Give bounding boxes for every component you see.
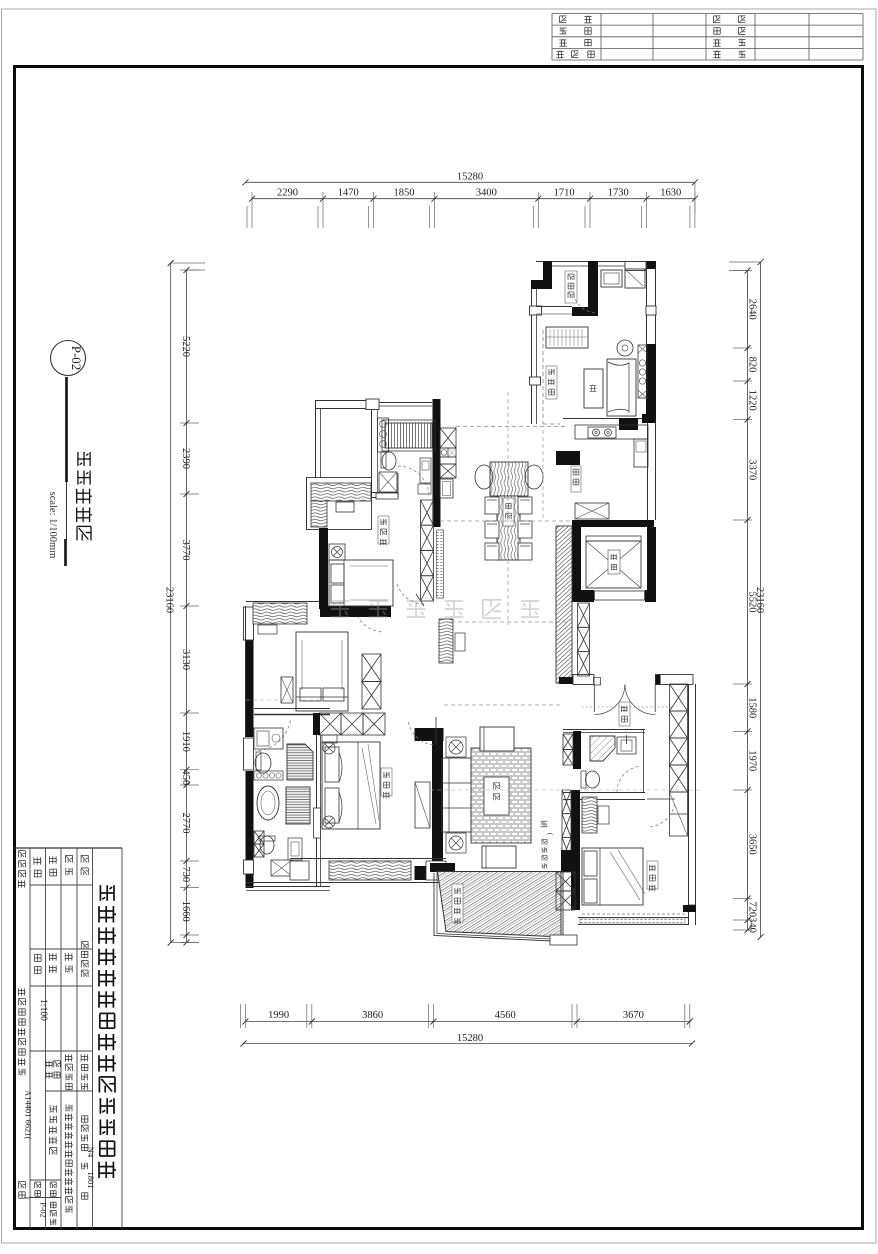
svg-text:730: 730 (180, 866, 191, 882)
svg-text:5220: 5220 (180, 336, 191, 357)
svg-text:1470: 1470 (338, 188, 359, 199)
svg-text:1970: 1970 (747, 750, 758, 771)
svg-text:15280: 15280 (457, 172, 483, 183)
svg-text:15280: 15280 (457, 1033, 483, 1044)
svg-text:N4: N4 (86, 1147, 96, 1158)
svg-text:1580: 1580 (747, 697, 758, 718)
svg-text:450: 450 (180, 770, 191, 786)
svg-text:3650: 3650 (747, 834, 758, 855)
svg-text:23160: 23160 (164, 587, 175, 613)
svg-text:scale: 1/100mm: scale: 1/100mm (47, 492, 58, 559)
svg-text:4560: 4560 (495, 1010, 516, 1021)
svg-text:3370: 3370 (747, 459, 758, 480)
svg-text:2290: 2290 (277, 188, 298, 199)
svg-text:1660: 1660 (180, 901, 191, 922)
svg-text:1910: 1910 (180, 731, 191, 752)
svg-text:1710: 1710 (554, 188, 575, 199)
svg-text:): ) (24, 1196, 34, 1199)
svg-text:820: 820 (747, 357, 758, 373)
svg-text:2770: 2770 (180, 813, 191, 834)
svg-text:1630: 1630 (660, 188, 681, 199)
svg-text:340: 340 (747, 917, 758, 933)
svg-text:2390: 2390 (180, 448, 191, 469)
svg-text:23160: 23160 (754, 587, 765, 613)
svg-text:1220: 1220 (747, 390, 758, 411)
svg-text:A14401 6621(: A14401 6621( (24, 1090, 34, 1140)
svg-text:P-02: P-02 (39, 1202, 48, 1217)
svg-text:3130: 3130 (180, 649, 191, 670)
svg-text:1801: 1801 (86, 1172, 96, 1189)
svg-text:720: 720 (747, 901, 758, 917)
svg-text:2640: 2640 (747, 299, 758, 320)
svg-text:P-02: P-02 (69, 346, 84, 371)
svg-text:3670: 3670 (623, 1010, 644, 1021)
svg-text:3400: 3400 (476, 188, 497, 199)
svg-text:3770: 3770 (180, 540, 191, 561)
svg-text:3860: 3860 (362, 1010, 383, 1021)
svg-text:1730: 1730 (608, 188, 629, 199)
svg-text:1:100: 1:100 (38, 999, 48, 1021)
svg-text:1850: 1850 (394, 188, 415, 199)
svg-text:1990: 1990 (268, 1010, 289, 1021)
